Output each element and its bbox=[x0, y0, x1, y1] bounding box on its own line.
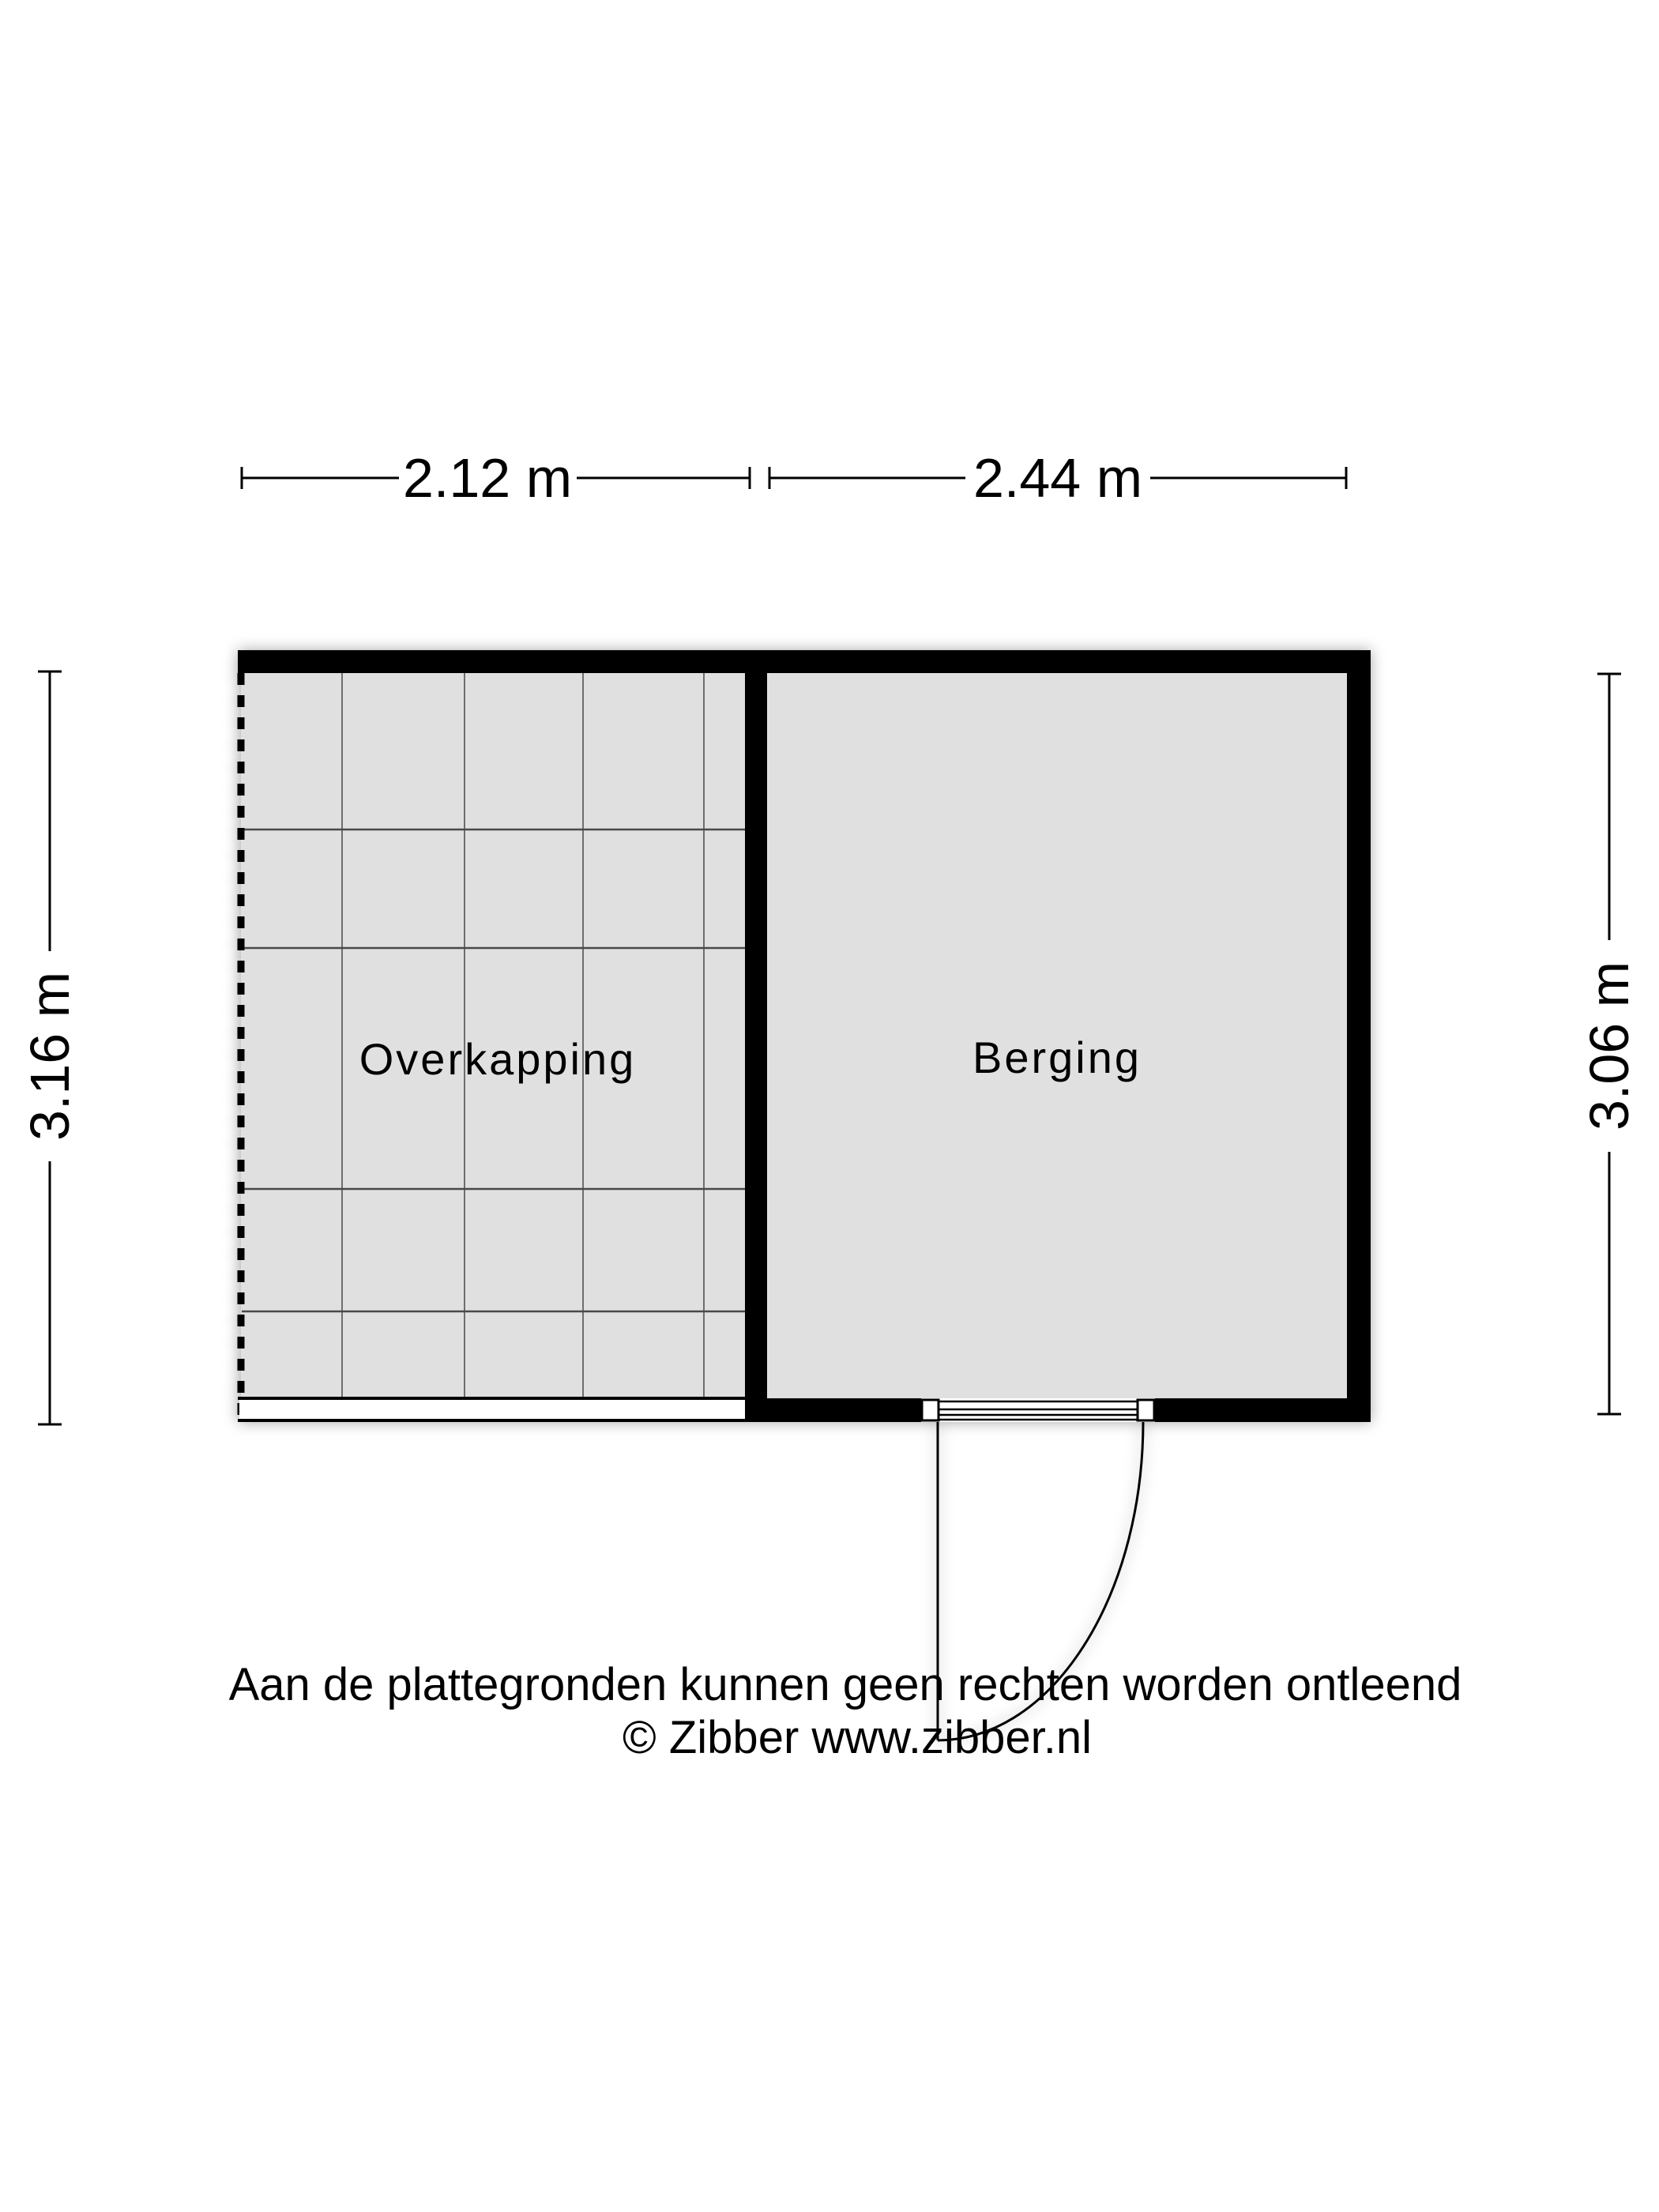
floorplan-canvas: 2.12 m 2.44 m 3.16 m 3.06 m Overkapping … bbox=[0, 0, 1659, 2212]
dimension-label-berging-height: 3.06 m bbox=[1578, 961, 1640, 1130]
room-label-berging: Berging bbox=[972, 1033, 1142, 1082]
door-jamb-right bbox=[1138, 1400, 1154, 1420]
open-edge-strip bbox=[239, 1398, 745, 1420]
dimension-label-berging-width: 2.44 m bbox=[973, 447, 1142, 509]
footer-copyright: © Zibber www.zibber.nl bbox=[623, 1712, 1092, 1763]
overkapping-open-edge-bottom bbox=[238, 1398, 745, 1420]
footer: Aan de plattegronden kunnen geen rechten… bbox=[229, 1659, 1462, 1763]
wall-top bbox=[238, 650, 1371, 673]
floorplan-plan bbox=[238, 650, 1371, 1740]
wall-right bbox=[1347, 668, 1371, 1422]
door-jamb-left bbox=[922, 1400, 939, 1420]
dimension-overkapping-width: 2.12 m bbox=[242, 447, 750, 509]
wall-bottom-left-segment bbox=[745, 1398, 921, 1422]
dimension-berging-width: 2.44 m bbox=[769, 447, 1346, 509]
dimension-label-overkapping-height: 3.16 m bbox=[19, 972, 81, 1141]
dimension-overkapping-height: 3.16 m bbox=[19, 671, 81, 1424]
dimension-berging-height: 3.06 m bbox=[1578, 674, 1640, 1414]
door-threshold bbox=[921, 1398, 1155, 1422]
wall-bottom-right-segment bbox=[1155, 1398, 1371, 1422]
dimension-label-overkapping-width: 2.12 m bbox=[403, 447, 572, 509]
room-label-overkapping: Overkapping bbox=[359, 1034, 637, 1084]
footer-disclaimer: Aan de plattegronden kunnen geen rechten… bbox=[229, 1659, 1462, 1710]
wall-divider bbox=[745, 668, 767, 1422]
